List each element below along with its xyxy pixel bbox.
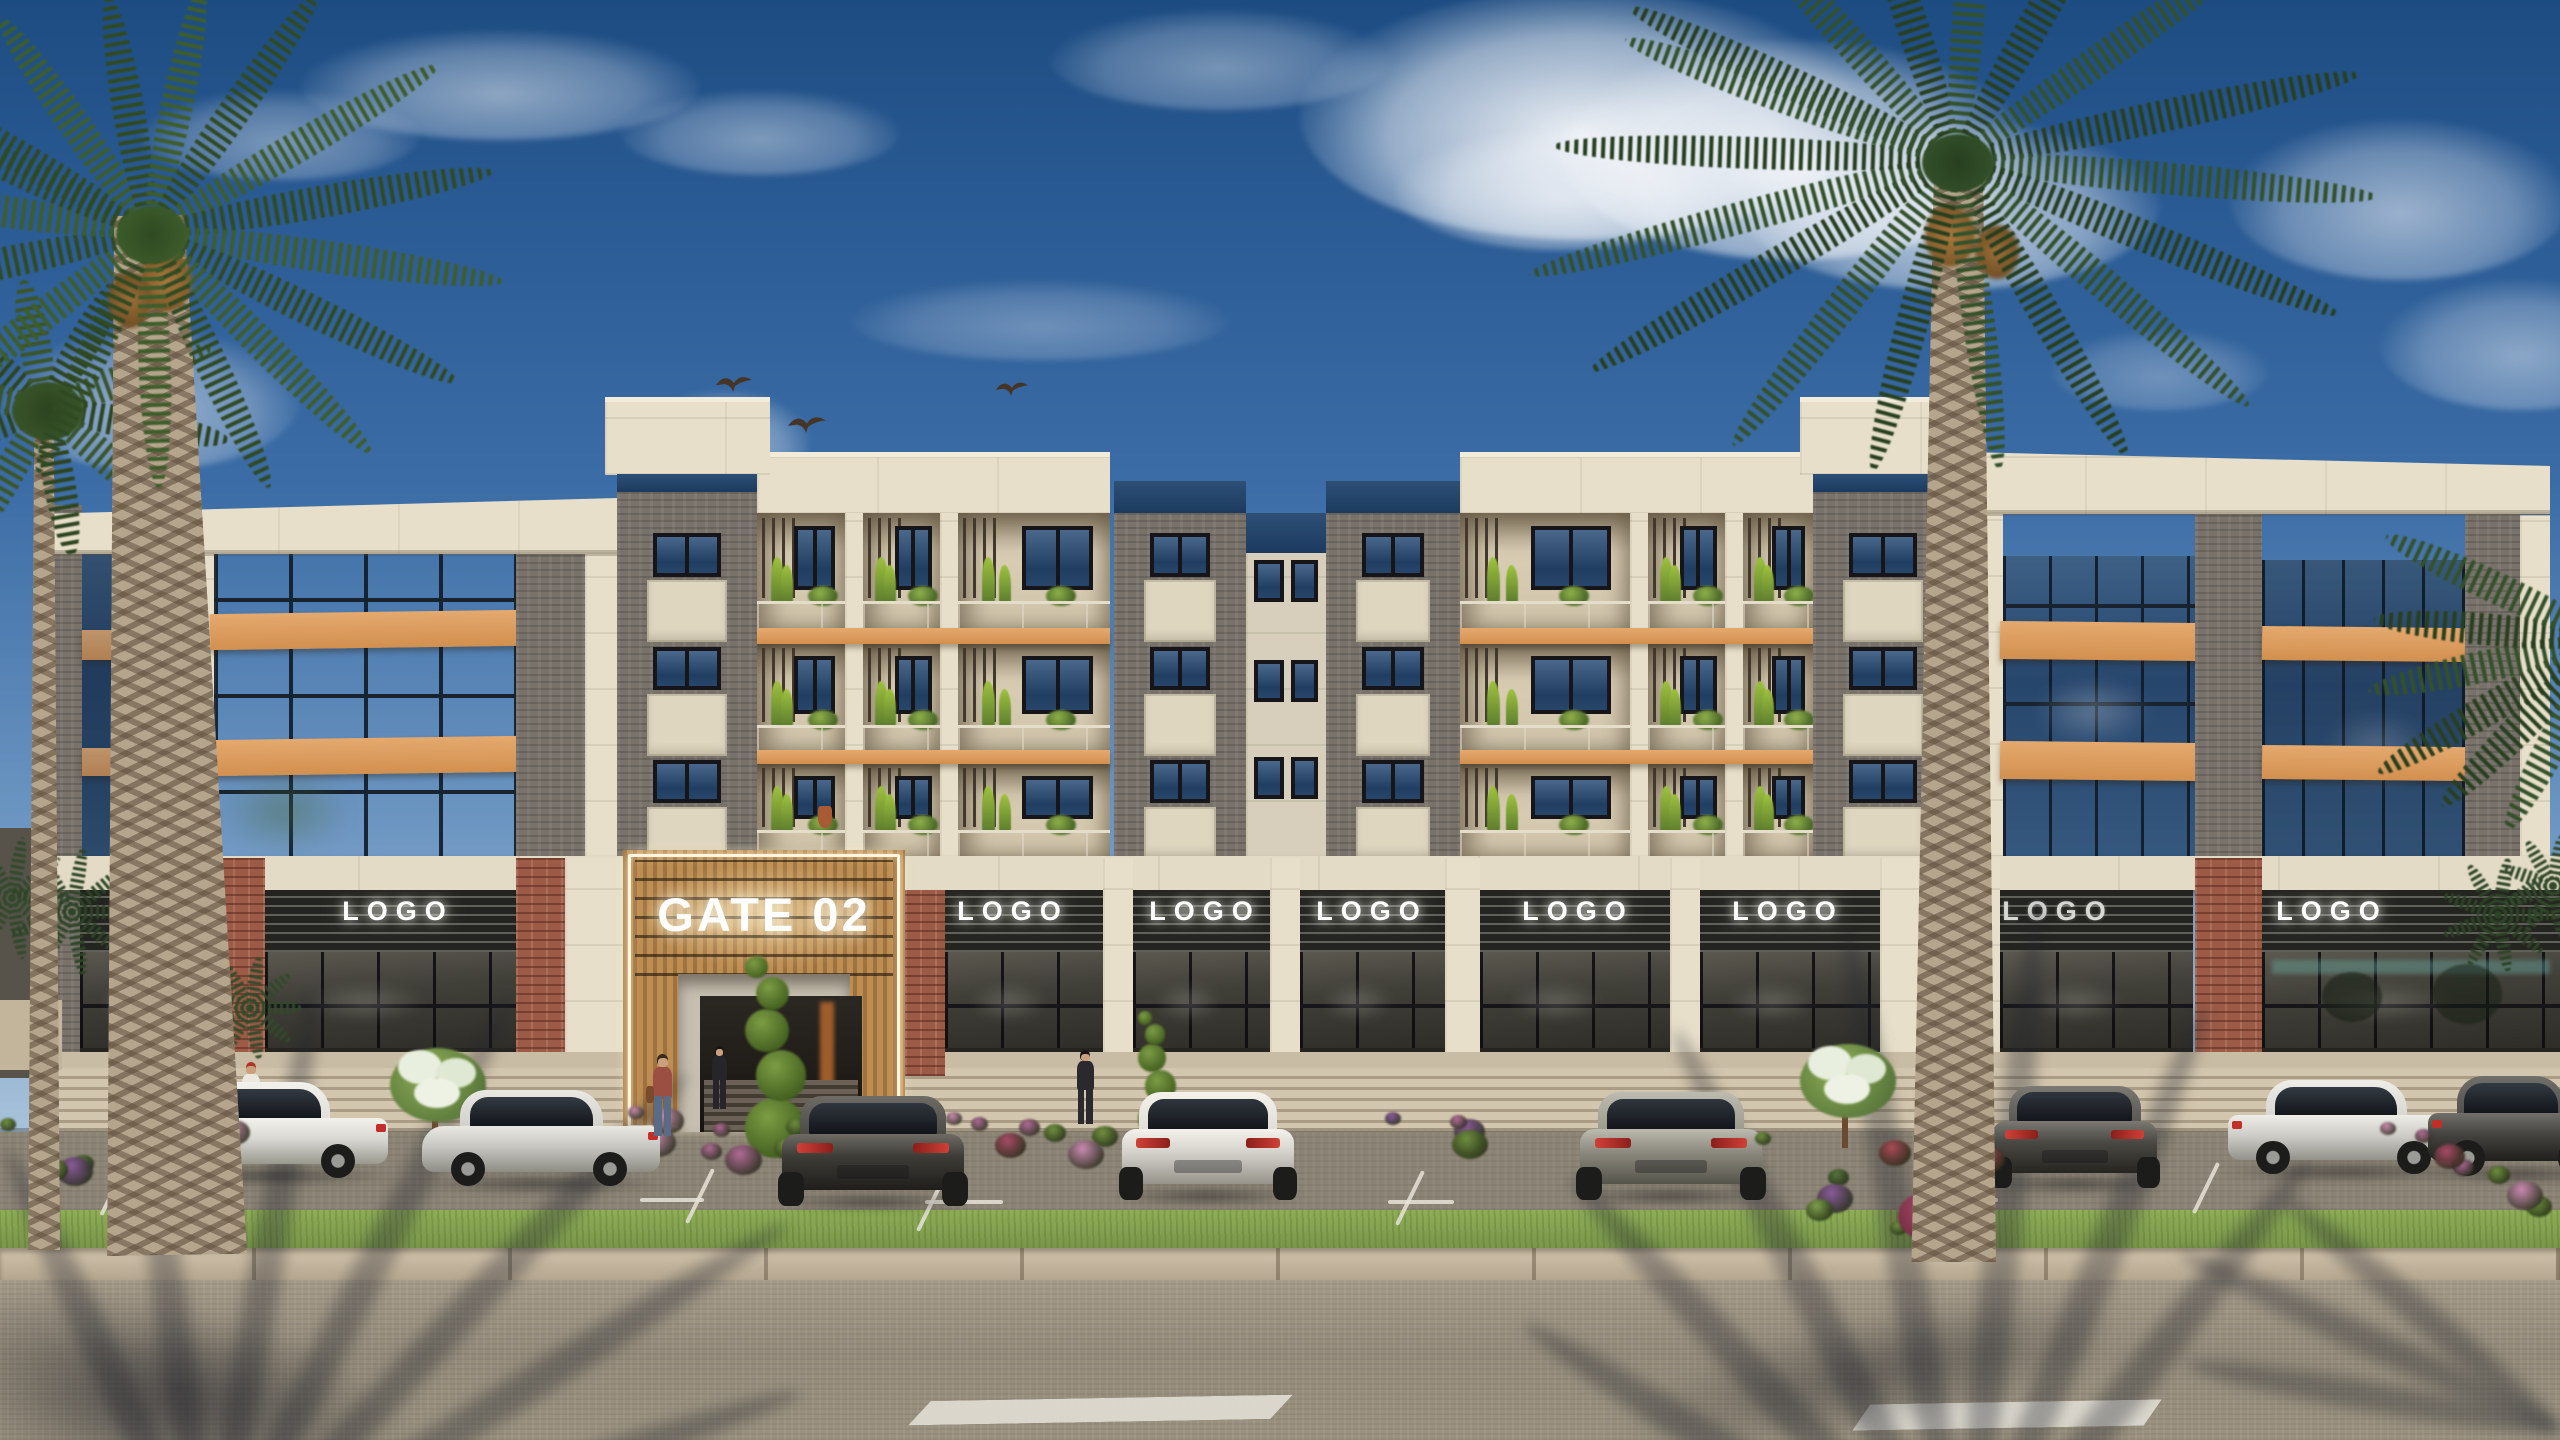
architectural-render-scene: LOGOLOGOLOGOLOGOLOGOLOGOLOGOLOGOLOGO GAT… [0, 0, 2560, 1440]
palm-trunk [28, 408, 60, 1250]
palm-crown-core [116, 206, 188, 264]
palm-tree-layer [0, 0, 2560, 1440]
palm-crown-core [1922, 134, 1994, 192]
